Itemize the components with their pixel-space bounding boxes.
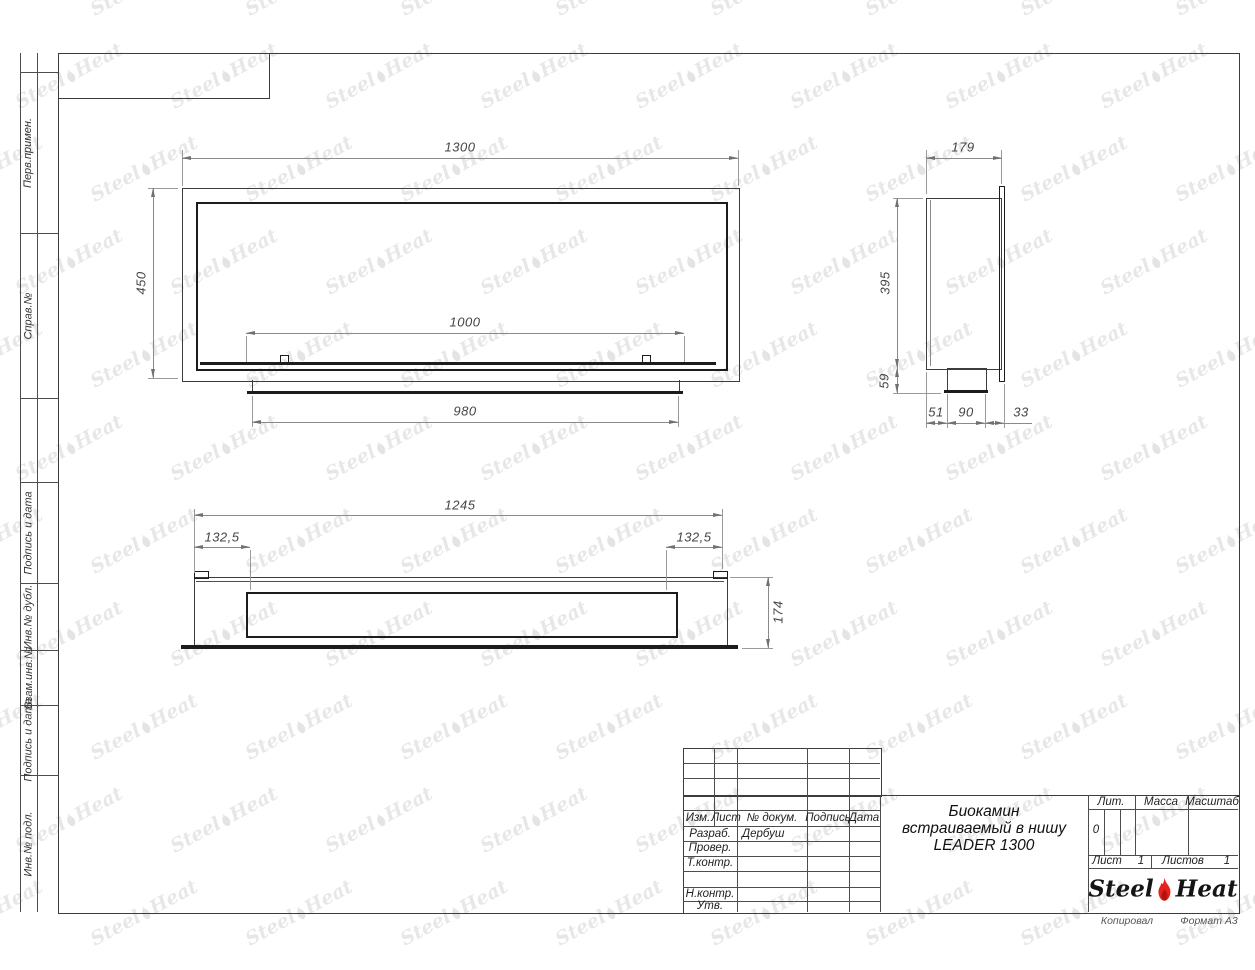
dim-plan-inset-right: 132,5 (676, 530, 711, 545)
top-left-stamp-box (58, 53, 270, 99)
row-razrab-label: Разраб. (689, 828, 731, 840)
margin-label-sprav-no: Справ.№ (20, 233, 37, 398)
side-tray-plate (944, 390, 988, 393)
front-base-plate (247, 391, 683, 394)
dim-line (153, 188, 154, 378)
hdr-list: Лист (711, 812, 741, 824)
plan-tab-right (713, 571, 728, 579)
sheet-value: 1 (1138, 855, 1144, 867)
margin-label-podpis-data-1: Подпись и дата (20, 482, 37, 583)
dim-side-depth: 179 (951, 140, 974, 155)
logo-steel-text: Steel (1088, 876, 1153, 903)
margin-label-inv-podl: Инв.№ подл. (20, 775, 37, 912)
massa-header: Масса (1144, 796, 1178, 808)
hdr-doc: № докум. (747, 812, 798, 824)
dim-line (252, 422, 678, 423)
front-shelf-line (200, 362, 716, 365)
margin-label-inv-dubl: Инв.№ дубл. (20, 583, 37, 650)
dim-line (768, 577, 769, 648)
format-note: Формат А3 (1180, 915, 1237, 927)
dim-plan-inset-left: 132,5 (204, 530, 239, 545)
sheets-total-label: Листов (1162, 855, 1204, 867)
lit-header: Лит. (1098, 796, 1125, 808)
dim-front-opening: 1000 (450, 315, 481, 330)
margin-label-vzam-inv: Взам.инв.№ (20, 650, 37, 705)
dim-line (926, 158, 1002, 159)
dim-line (182, 158, 738, 159)
drawing-sheet: Перв.примен. Справ.№ Подпись и дата Инв.… (0, 0, 1255, 970)
hdr-izm: Изм. (686, 812, 711, 824)
front-clip-right (642, 355, 651, 364)
hdr-sign: Подпись (805, 812, 851, 824)
dim-plan-width: 1245 (445, 498, 476, 513)
dim-side-tray-height: 59 (877, 373, 892, 388)
flame-icon (1156, 876, 1174, 902)
plan-tab-left (194, 571, 209, 579)
sheet-frame (58, 53, 1240, 914)
doc-title-line3: LEADER 1300 (934, 837, 1035, 855)
dim-side-90: 90 (958, 405, 973, 420)
sheets-total-value: 1 (1224, 855, 1230, 867)
side-body-contour (926, 198, 1002, 370)
dim-front-width: 1300 (445, 140, 476, 155)
front-opening-contour (196, 202, 728, 371)
steelheat-logo: Steel Heat (1088, 876, 1237, 903)
plan-base-plate (181, 645, 738, 649)
row-tkontr-label: Т.контр. (687, 857, 733, 869)
plan-opening-contour (246, 592, 678, 638)
masshtab-header: Масштаб (1185, 796, 1239, 808)
margin-label-perv-primen: Перв.примен. (20, 72, 37, 233)
dim-line (897, 198, 898, 368)
side-tray-contour (947, 368, 987, 392)
dim-plan-depth: 174 (771, 600, 786, 623)
doc-title-line1: Биокамин (948, 803, 1019, 821)
dim-front-height: 450 (134, 271, 149, 294)
revision-table (683, 748, 882, 797)
logo-heat-text: Heat (1176, 876, 1238, 903)
row-prover-label: Провер. (689, 842, 732, 854)
sheet-label: Лист (1092, 855, 1122, 867)
hdr-date: Дата (849, 812, 879, 824)
dim-line (194, 515, 722, 516)
dim-front-base: 980 (453, 404, 476, 419)
dim-line (246, 333, 684, 334)
side-front-flange (999, 186, 1005, 382)
row-nkontr-label: Н.контр. (686, 888, 735, 900)
dim-side-51: 51 (928, 405, 943, 420)
dim-side-33: 33 (1013, 405, 1028, 420)
copied-note: Копировал (1101, 915, 1153, 927)
plan-top-plate-line (196, 581, 724, 582)
front-clip-left (280, 355, 289, 364)
row-utv-label: Утв. (697, 900, 723, 912)
margin-label-podpis-data-2: Подпись и дата (20, 705, 37, 775)
row-razrab-value: Дербуш (742, 828, 784, 840)
doc-title-line2: встраиваемый в нишу (902, 820, 1066, 838)
lit-value: 0 (1093, 824, 1099, 836)
dim-side-height: 395 (878, 271, 893, 294)
